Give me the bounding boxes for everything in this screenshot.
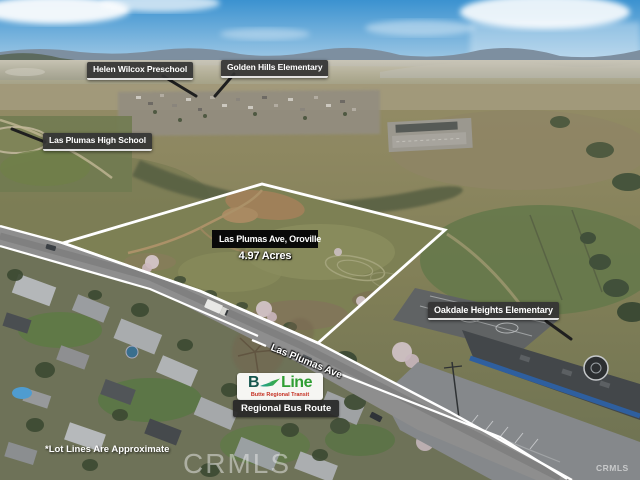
crmls-watermark-corner: CRMLS <box>596 463 629 473</box>
label-text: Oakdale Heights Elementary <box>434 305 553 315</box>
label-las-plumas-high-school: Las Plumas High School <box>43 133 152 151</box>
label-helen-wilcox-preschool: Helen Wilcox Preschool <box>87 62 193 80</box>
backyard-pool <box>12 387 32 399</box>
transit-logo: B Line Butte Regional Transit <box>237 373 323 400</box>
trampoline <box>126 346 138 358</box>
label-golden-hills-elementary: Golden Hills Elementary <box>221 60 328 78</box>
label-text: Golden Hills Elementary <box>227 62 322 72</box>
bline-swoosh-icon <box>260 378 280 388</box>
property-address-box: Las Plumas Ave, Oroville <box>212 230 318 248</box>
lot-lines-footnote: *Lot Lines Are Approximate <box>45 444 169 455</box>
label-text: Las Plumas High School <box>49 135 146 145</box>
high-school-grounds <box>0 116 132 192</box>
property-address: Las Plumas Ave, Oroville <box>219 234 321 244</box>
bus-route-label: Regional Bus Route <box>233 400 339 417</box>
label-text: Helen Wilcox Preschool <box>93 64 187 74</box>
label-oakdale-heights-elementary: Oakdale Heights Elementary <box>428 302 559 320</box>
property-acreage: 4.97 Acres <box>212 250 318 262</box>
transit-brand-name: Line <box>281 375 312 391</box>
transit-brand-initial: B <box>248 375 259 391</box>
transit-agency: Butte Regional Transit <box>251 392 309 398</box>
aerial-listing-photo: Helen Wilcox Preschool Golden Hills Elem… <box>0 0 640 480</box>
transit-logo-row: B Line <box>248 375 312 391</box>
crmls-watermark-center: CRMLS <box>183 448 291 480</box>
